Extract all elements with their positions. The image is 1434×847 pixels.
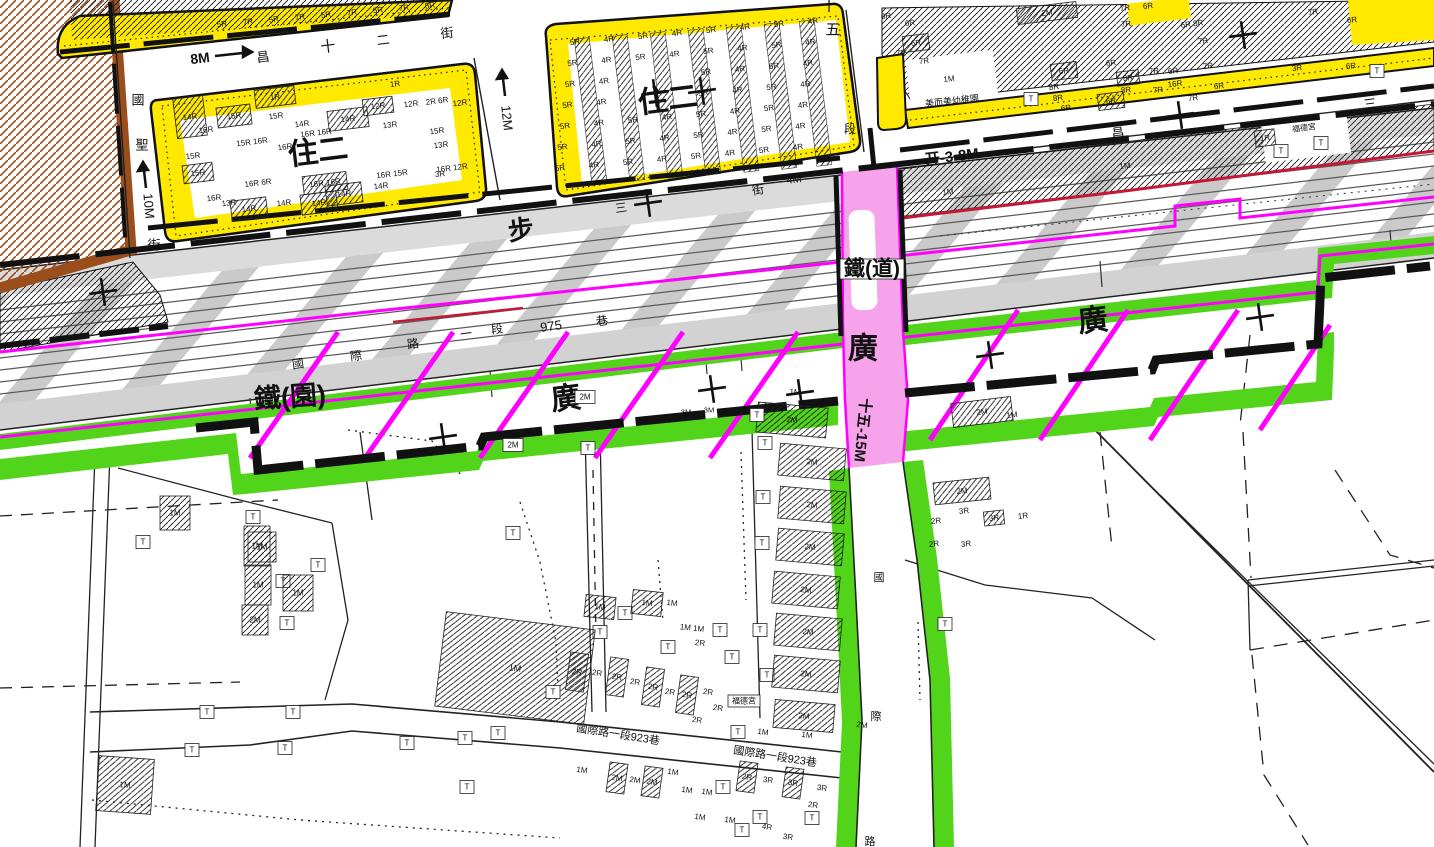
map-label: T (598, 628, 603, 637)
map-label: 2R (664, 687, 676, 697)
map-label: 2R (691, 715, 703, 725)
map-label: 5R (766, 82, 778, 92)
map-label: 4R (661, 112, 673, 122)
map-label: 8R (1122, 73, 1133, 83)
map-label: 1M (694, 812, 707, 823)
map-label: 1M (1006, 410, 1018, 420)
map-label: 5R (698, 88, 710, 98)
map-label: T (765, 671, 770, 680)
map-label: 1R (269, 92, 280, 102)
map-label: 5R (557, 142, 569, 152)
map-label: 4R (761, 822, 773, 832)
map-label: 4R (729, 106, 741, 116)
map-label: 1M (724, 815, 737, 826)
map-label: 3R (988, 513, 999, 523)
map-label: 16R (277, 142, 293, 153)
map-label: 5R (268, 14, 280, 24)
map-label: 1M (943, 74, 955, 84)
map-label: 7R (294, 12, 306, 22)
map-label: 2R (647, 682, 659, 692)
map-label: 街 (147, 238, 160, 253)
map-label: 4M (786, 173, 803, 187)
map-label: 7R (1119, 3, 1130, 13)
map-label: 街 (440, 25, 455, 41)
map-label: 6R (1105, 58, 1116, 68)
map-label: 1M (641, 598, 653, 608)
map-label: 7R (1187, 93, 1198, 103)
map-label: 國 (291, 356, 305, 372)
map-label: T (496, 729, 501, 738)
map-label: 5R (564, 79, 576, 89)
map-label: 1M (681, 785, 694, 796)
map-label: 2M (507, 441, 518, 450)
map-label: 4R (795, 121, 807, 131)
map-label: 3R (958, 506, 969, 516)
map-label: 3R (762, 775, 774, 785)
map-label: 3R (782, 832, 794, 842)
map-label: 三 (1363, 96, 1378, 112)
map-label: 5R (424, 0, 436, 10)
map-label: 2M (1041, 8, 1053, 18)
map-label: 4R (588, 160, 600, 170)
map-label: 3R (1291, 63, 1302, 73)
map-label: 1M (942, 187, 954, 197)
map-label: 5R (569, 37, 581, 47)
map-label: 1M (701, 787, 714, 798)
map-label: 6R (1058, 66, 1069, 76)
map-label: T (810, 814, 815, 823)
map-label: T (730, 653, 735, 662)
map-label: T (718, 626, 723, 635)
map-label: T (291, 708, 296, 717)
map-label: 15R (226, 111, 242, 122)
map-label: 7R (346, 7, 358, 17)
map-label: 6R (1060, 103, 1071, 113)
map-label: 福德宮 (732, 696, 756, 706)
map-label: 3R (816, 783, 828, 793)
map-label: 2M (956, 486, 968, 496)
map-label: 際 (349, 348, 363, 364)
map-label: T (283, 744, 288, 753)
map-label: 4R (593, 118, 605, 128)
map-label: 5R (622, 157, 634, 167)
map-label: 步 (506, 214, 535, 247)
map-label: 4R (802, 58, 814, 68)
map-label: 2M (786, 415, 798, 425)
map-label: T (623, 609, 628, 618)
map-label: 2R (591, 668, 603, 678)
map-label: 2R (681, 690, 693, 700)
map-label: 5R (690, 151, 702, 161)
map-label: 1M (666, 598, 678, 608)
map-label: 4R (598, 76, 610, 86)
map-label: 5R (693, 130, 705, 140)
map-label: 2M (579, 393, 590, 402)
map-label: 2R (629, 677, 641, 687)
map-label: 2R (807, 800, 819, 810)
map-label: 2M (806, 457, 818, 467)
map-label: 1M (1119, 161, 1131, 171)
map-label: 1M (292, 589, 303, 598)
map-label: 廣 (1076, 302, 1110, 339)
map-label: 7R (1120, 19, 1131, 29)
map-label: 4R (739, 22, 751, 32)
map-label: 14R (311, 198, 327, 209)
map-label: 15R (429, 126, 445, 137)
map-label: T (721, 783, 726, 792)
map-label: 15R (268, 111, 284, 122)
map-label: 7R (1197, 36, 1208, 46)
map-label: 8R (1048, 82, 1059, 92)
map-label: T (763, 439, 768, 448)
map-label: 7R (895, 48, 906, 58)
map-label: 5R (761, 124, 773, 134)
map-label: 4R (737, 43, 749, 53)
map-label: 2M (856, 720, 869, 731)
map-label: 1R (1017, 511, 1028, 521)
map-label: T (205, 708, 210, 717)
map-label: 鐵(園) (253, 380, 327, 415)
map-label: 16R (206, 193, 222, 204)
map-label: 2M (646, 777, 659, 788)
map-label: 2M (802, 627, 814, 637)
map-label: 5R (625, 136, 637, 146)
map-label: T (758, 626, 763, 635)
map-label: 2M (611, 773, 624, 784)
map-label: T (316, 561, 321, 570)
urban-plan-map: 住二住二步鐵(道)鐵(園)廣廣廣8M昌十二街國聖10M街12M三街4M十五段昌三… (0, 0, 1434, 847)
map-label: 3M (681, 408, 691, 417)
map-label: 廣 (848, 332, 878, 366)
map-label: T (740, 826, 745, 835)
map-label: 3R (960, 539, 971, 549)
map-label: T (405, 739, 410, 748)
map-label: 4R (591, 139, 603, 149)
map-label: 1M (667, 767, 680, 778)
map-label: 6R (910, 38, 921, 48)
map-label: 1M (594, 602, 606, 612)
map-label: 1R (389, 79, 400, 89)
map-label: 2M (804, 542, 816, 552)
map-label: 路 (406, 335, 420, 352)
map-label: 8R (880, 11, 891, 21)
map-label: 10M (140, 193, 157, 220)
map-label: 6R (1167, 66, 1178, 76)
map-label: 2M (629, 775, 642, 786)
map-label: 2M (798, 711, 810, 721)
map-label: 二 (376, 32, 391, 48)
map-label: 7R (398, 3, 410, 13)
map-label: 十 (320, 38, 337, 57)
map-label: 1M (508, 662, 522, 673)
map-label: 4R (734, 64, 746, 74)
map-label: 8M (189, 49, 210, 67)
map-label: 4R (797, 100, 809, 110)
map-label: 4R (727, 127, 739, 137)
map-label: 3M (704, 406, 714, 415)
map-label: T (666, 643, 671, 652)
map-label: 5R (773, 19, 785, 29)
map-label: 1M (789, 387, 801, 397)
map-label: 4R (805, 37, 817, 47)
map-label: 14R (241, 204, 257, 215)
map-label: 5R (703, 46, 715, 56)
map-label: 12M (498, 105, 516, 132)
map-label: 巷 (595, 313, 609, 329)
map-label: 2M (800, 585, 812, 595)
map-label: 4R (724, 148, 736, 158)
map-label: 1M (934, 386, 946, 396)
map-label: 16R (198, 125, 214, 136)
map-label: 7R (1307, 7, 1318, 17)
map-label: 4R (807, 16, 819, 26)
map-label: 5R (562, 100, 574, 110)
map-label: T (1319, 139, 1324, 148)
map-label: 14R (373, 181, 389, 192)
map-label: 5R (320, 10, 332, 20)
map-label: 13R (433, 140, 449, 151)
map-label: 2M (249, 616, 260, 625)
map-label: 6R (1142, 1, 1153, 11)
map-label: 5R (771, 40, 783, 50)
map-label: 3R (787, 778, 799, 788)
map-label: 1M (252, 581, 263, 590)
map-label: 7R (1148, 66, 1159, 76)
map-label: 國 (874, 571, 885, 584)
map-label: 5R (763, 103, 775, 113)
map-label: 段 (844, 121, 856, 136)
map-label: 1M (119, 780, 131, 790)
map-label: 1M (169, 509, 180, 518)
map-label: 6R (1345, 61, 1356, 71)
map-label: 14R (276, 198, 292, 209)
map-label: 1M (757, 727, 770, 738)
map-label: 4R (601, 55, 613, 65)
map-label: 4R (671, 28, 683, 38)
map-label: 1R (1259, 133, 1270, 143)
map-label: 5R (216, 19, 228, 29)
map-label: 14R (336, 189, 352, 200)
map-label: 街 (751, 182, 765, 198)
map-label: 國 (131, 93, 144, 108)
map-label: 12R (452, 98, 468, 109)
map-label: T (943, 620, 948, 629)
map-label: 2M (976, 407, 988, 417)
map-label: 3R (434, 169, 445, 179)
map-label: 14R (294, 119, 310, 130)
map-label: T (760, 539, 765, 548)
map-label: T (463, 734, 468, 743)
map-label: 十 (821, 0, 836, 15)
map-label: 4R (656, 154, 668, 164)
map-label: 2R (702, 687, 714, 697)
map-label: 2M (806, 500, 818, 510)
map-label: T (551, 688, 556, 697)
map-label: 4R (792, 142, 804, 152)
map-label: T (141, 538, 146, 547)
map-label: 5R (635, 52, 647, 62)
map-label: 6R (1105, 96, 1116, 106)
map-label: 16R (1167, 79, 1183, 90)
map-label: 2R (571, 667, 583, 677)
map-label: 5R (705, 25, 717, 35)
map-label: 14R (182, 112, 198, 123)
map-label: 5R (758, 145, 770, 155)
map-label: 4R (669, 49, 681, 59)
map-label: 2R (694, 638, 705, 648)
map-viewport: 住二住二步鐵(道)鐵(園)廣廣廣8M昌十二街國聖10M街12M三街4M十五段昌三… (0, 0, 1434, 847)
map-label: 7R (1202, 61, 1213, 71)
map-label: 6R (1346, 15, 1357, 25)
map-label: 際 (871, 710, 882, 723)
map-label: 15R (185, 151, 201, 162)
map-label: 5R (567, 58, 579, 68)
map-label: 1M (256, 543, 267, 552)
map-label: 4R (596, 97, 608, 107)
map-label: 12R (403, 99, 419, 110)
map-label: 昌 (256, 49, 271, 65)
map-label: 5R (768, 61, 780, 71)
map-label: 2R (712, 703, 724, 713)
map-label: 4R (659, 133, 671, 143)
map-label: 5R (695, 109, 707, 119)
map-label: 2M (800, 669, 812, 679)
map-label: T (465, 783, 470, 792)
map-label: 975 (539, 317, 563, 335)
map-label: 三 (614, 200, 628, 216)
map-label: T (758, 813, 763, 822)
map-label: 7R (918, 56, 929, 66)
map-label: 鐵(道) (844, 257, 900, 281)
map-label: 段 (490, 320, 504, 337)
map-label: 6R (904, 18, 915, 28)
map-label: T (1375, 67, 1380, 76)
map-label: T (1029, 95, 1034, 104)
map-label: 8R (1052, 93, 1063, 103)
map-label: T (285, 619, 290, 628)
map-label: T (755, 411, 760, 420)
map-label: T (1279, 147, 1284, 156)
map-label: 聖 (135, 138, 148, 153)
map-label: 4R (800, 79, 812, 89)
map-label: 2R (928, 539, 939, 549)
map-label: 12R (370, 101, 386, 112)
map-label: 2R (741, 772, 753, 782)
map-label: T (190, 746, 195, 755)
map-label: 五 (825, 22, 840, 39)
map-label: 15R (190, 168, 206, 179)
map-label: 5R (554, 163, 566, 173)
map-label: 一 (459, 326, 473, 342)
map-label: 6R (1213, 81, 1224, 91)
map-label: 5R (372, 5, 384, 15)
map-label: 1M (801, 730, 814, 741)
map-label: T (586, 444, 591, 453)
map-label: T (761, 493, 766, 502)
map-label: 5R (627, 115, 639, 125)
map-label: 2R (611, 672, 623, 682)
map-label: 14R (340, 114, 356, 125)
map-label: 7R (1152, 85, 1163, 95)
map-label: 昌 (1111, 125, 1126, 141)
map-label: 5R (637, 31, 649, 41)
map-label: 4R (603, 34, 615, 44)
map-label: 5R (559, 121, 571, 131)
map-label: T (511, 529, 516, 538)
map-label: 13R (382, 120, 398, 131)
map-label: 路 (865, 835, 876, 847)
map-label: 1M (576, 765, 589, 776)
map-label: T (251, 513, 256, 522)
map-label: 2R (930, 516, 941, 526)
map-label: T (736, 728, 741, 737)
map-label: 5R (700, 67, 712, 77)
map-label: 7R (242, 17, 254, 27)
map-label: 4R (732, 85, 744, 95)
